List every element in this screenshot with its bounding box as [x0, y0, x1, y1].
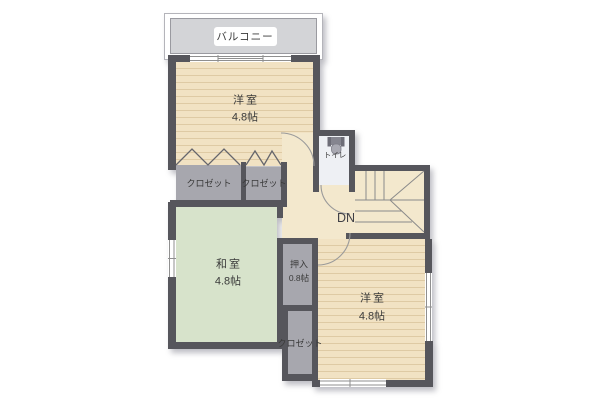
- window-western-room-bottom: [320, 379, 386, 387]
- balcony-label: バルコニー: [216, 32, 273, 43]
- western-room-bottom-label: 洋室: [360, 294, 386, 305]
- japanese-room-label: 和室: [216, 260, 242, 271]
- wall-segment: [282, 374, 318, 381]
- wall-segment: [346, 233, 430, 239]
- wall-segment: [313, 136, 319, 192]
- stairs-floor: [355, 171, 424, 233]
- oshiire-size: 0.8帖: [289, 274, 309, 283]
- japanese-room-floor: [176, 207, 277, 342]
- closet-top-right-label: クロゼット: [241, 180, 286, 189]
- western-room-bottom-floor: [318, 239, 425, 380]
- japanese-room-size: 4.8帖: [215, 277, 241, 288]
- closet-top-left-label: クロゼット: [186, 180, 231, 189]
- toilet-label: トイレ: [324, 151, 347, 159]
- wall-segment: [424, 165, 430, 239]
- floor-plan-drawing: バルコニー 洋室 4.8帖 クロゼット クロゼット トイレ DN 和室 4.8帖…: [0, 0, 600, 406]
- wall-segment: [277, 202, 283, 218]
- wall-segment: [425, 239, 432, 275]
- wall-segment: [168, 342, 282, 349]
- stairs-down-label: DN: [337, 212, 355, 225]
- wall-segment: [350, 165, 430, 171]
- wall-segment: [168, 55, 176, 170]
- wall-segment: [386, 380, 433, 387]
- wall-segment: [349, 130, 355, 192]
- window-balcony: [190, 55, 291, 62]
- closet-bottom-label: クロゼット: [277, 340, 322, 349]
- floor-plan: バルコニー 洋室 4.8帖 クロゼット クロゼット トイレ DN 和室 4.8帖…: [0, 0, 600, 406]
- wall-segment: [313, 55, 320, 135]
- western-room-top-label: 洋室: [233, 96, 259, 107]
- wall-segment: [170, 200, 287, 207]
- western-room-bottom-size: 4.8帖: [359, 312, 385, 323]
- toilet-floor: [319, 136, 349, 185]
- window-japanese-room: [168, 240, 176, 277]
- window-western-room-bottom-right: [425, 273, 432, 341]
- western-room-top-size: 4.8帖: [232, 113, 258, 124]
- oshiire-label: 押入: [290, 261, 308, 270]
